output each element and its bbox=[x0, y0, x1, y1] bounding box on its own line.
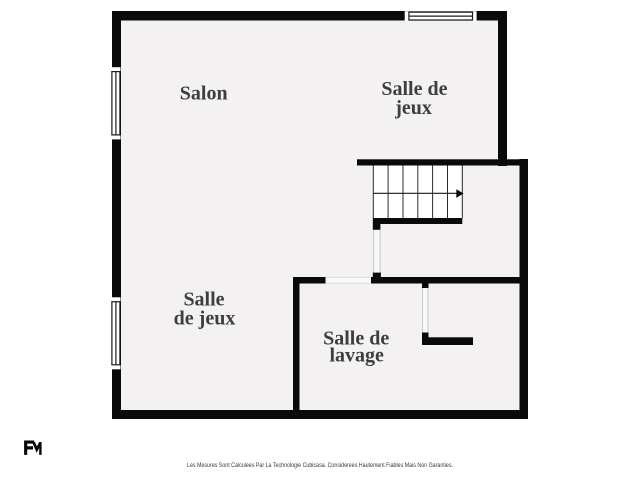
svg-text:lavage: lavage bbox=[329, 345, 384, 367]
svg-text:jeux: jeux bbox=[394, 97, 432, 119]
svg-text:Salon: Salon bbox=[180, 83, 228, 105]
svg-text:Les Mesures Sont Calculees Par: Les Mesures Sont Calculees Par La Techno… bbox=[187, 462, 453, 469]
svg-text:de jeux: de jeux bbox=[174, 307, 236, 329]
